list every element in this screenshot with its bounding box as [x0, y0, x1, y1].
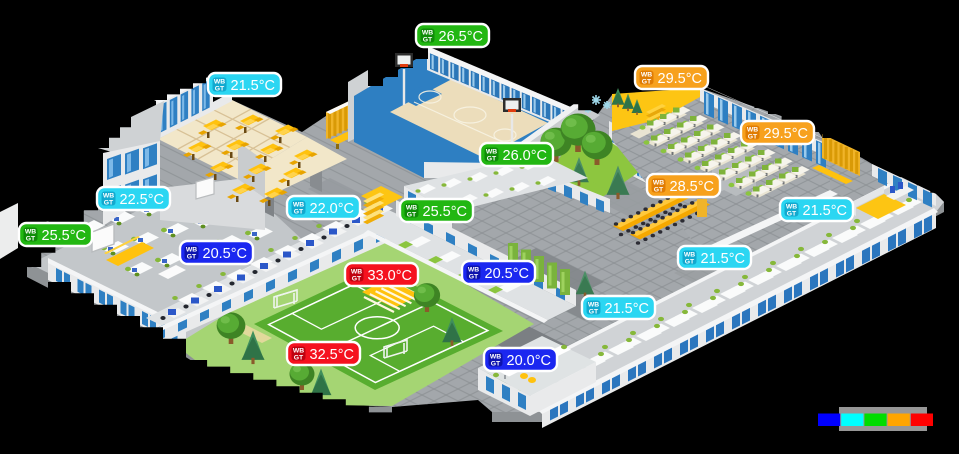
svg-text:GT: GT	[748, 133, 758, 140]
svg-text:WB: WB	[786, 203, 797, 210]
svg-text:GT: GT	[487, 155, 497, 162]
svg-text:22.5°C: 22.5°C	[120, 192, 165, 208]
svg-text:GT: GT	[407, 211, 417, 218]
svg-text:WB: WB	[588, 301, 599, 308]
svg-text:WB: WB	[214, 78, 225, 85]
svg-text:20.0°C: 20.0°C	[507, 353, 552, 369]
svg-text:WB: WB	[25, 228, 36, 235]
svg-text:20.5°C: 20.5°C	[203, 246, 248, 262]
svg-text:GT: GT	[423, 36, 433, 43]
svg-text:GT: GT	[215, 85, 225, 92]
svg-text:WB: WB	[490, 353, 501, 360]
svg-text:29.5°C: 29.5°C	[658, 71, 703, 87]
svg-text:WB: WB	[684, 251, 695, 258]
svg-text:20.5°C: 20.5°C	[485, 266, 530, 282]
svg-text:32.5°C: 32.5°C	[310, 347, 355, 363]
svg-text:WB: WB	[747, 126, 758, 133]
svg-text:22.0°C: 22.0°C	[310, 201, 355, 217]
svg-text:26.5°C: 26.5°C	[439, 29, 484, 45]
svg-text:21.5°C: 21.5°C	[701, 251, 746, 267]
svg-text:21.5°C: 21.5°C	[231, 78, 276, 94]
svg-text:GT: GT	[104, 199, 114, 206]
svg-text:GT: GT	[187, 253, 197, 260]
svg-text:WB: WB	[293, 347, 304, 354]
svg-text:GT: GT	[642, 78, 652, 85]
svg-text:21.5°C: 21.5°C	[605, 301, 650, 317]
svg-text:GT: GT	[294, 354, 304, 361]
svg-text:GT: GT	[469, 273, 479, 280]
svg-text:WB: WB	[293, 201, 304, 208]
svg-text:GT: GT	[589, 308, 599, 315]
svg-text:25.5°C: 25.5°C	[423, 204, 468, 220]
svg-text:WB: WB	[406, 204, 417, 211]
svg-text:WB: WB	[486, 148, 497, 155]
svg-text:29.5°C: 29.5°C	[764, 126, 809, 142]
svg-text:21.5°C: 21.5°C	[803, 203, 848, 219]
svg-text:GT: GT	[787, 210, 797, 217]
svg-text:25.5°C: 25.5°C	[42, 228, 87, 244]
svg-text:WB: WB	[653, 179, 664, 186]
svg-text:GT: GT	[352, 275, 362, 282]
svg-text:26.0°C: 26.0°C	[503, 148, 548, 164]
svg-text:GT: GT	[654, 186, 664, 193]
svg-text:WB: WB	[103, 192, 114, 199]
svg-text:GT: GT	[26, 235, 36, 242]
svg-text:WB: WB	[468, 266, 479, 273]
svg-text:WB: WB	[351, 268, 362, 275]
svg-text:33.0°C: 33.0°C	[368, 268, 413, 284]
svg-text:GT: GT	[685, 258, 695, 265]
svg-text:GT: GT	[294, 208, 304, 215]
svg-text:WB: WB	[641, 71, 652, 78]
svg-text:WB: WB	[186, 246, 197, 253]
svg-text:WB: WB	[422, 29, 433, 36]
svg-text:28.5°C: 28.5°C	[670, 179, 715, 195]
svg-text:GT: GT	[491, 360, 501, 367]
